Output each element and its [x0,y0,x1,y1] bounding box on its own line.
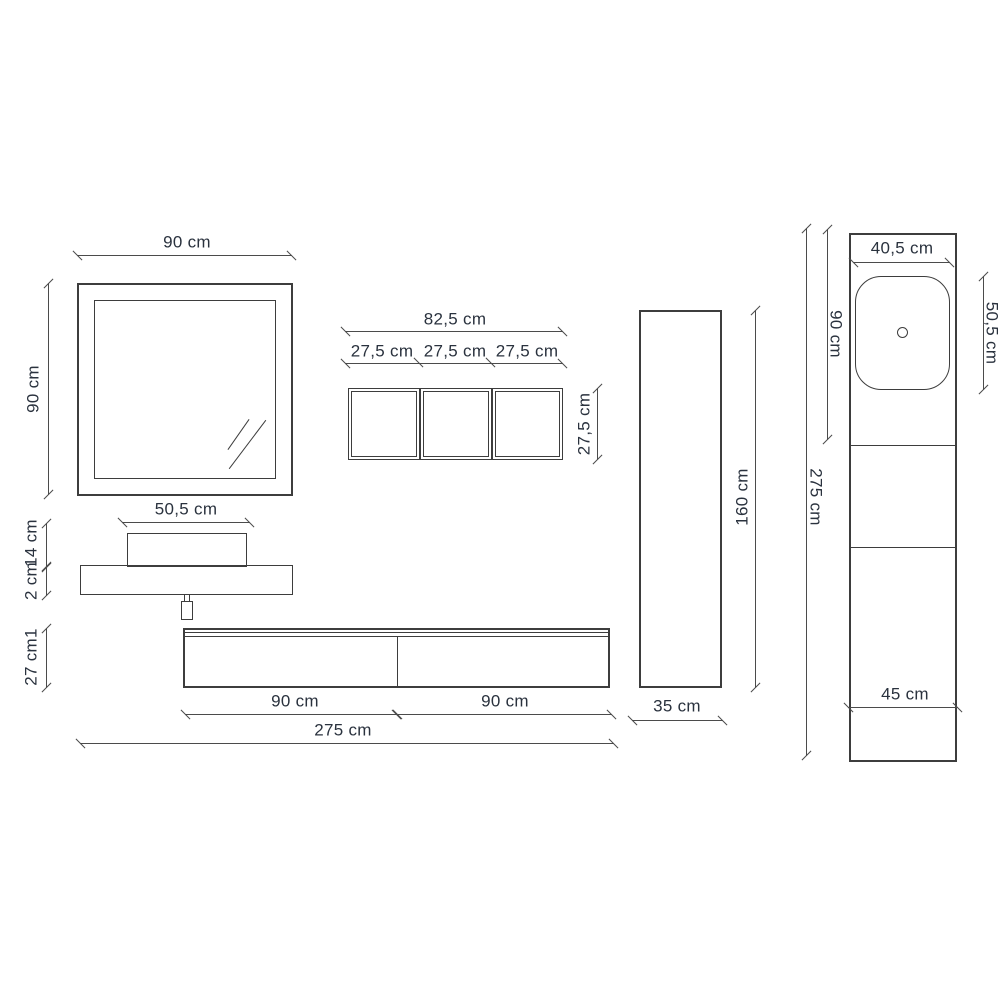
wall-box-3 [492,388,563,460]
wall-box-width-label-3: 27,5 cm [496,343,559,360]
base-cabinet-left-dim-line [185,714,397,715]
column-upper-section-label: 90 cm [828,310,845,358]
wall-boxes-segment-dim-line [345,363,563,364]
mirror-height-label: 90 cm [25,365,42,413]
column-top-width-label: 40,5 cm [871,240,934,257]
column-base-width-dim-line [848,707,958,708]
column-total-height-label: 275 cm [808,468,825,526]
faucet-body [181,601,193,620]
side-column-divider [851,445,955,446]
base-cabinet-top-edge-line [185,632,608,633]
basin-height-dim-line [46,523,47,567]
mirror-width-dim-line [77,255,292,256]
shelf-width-dim-line [122,522,250,523]
wall-box-1 [348,388,420,460]
wall-boxes-height-label: 27,5 cm [576,393,593,456]
base-cabinet-right-dim-line [397,714,612,715]
drain-hole [897,327,908,338]
wall-box-2 [420,388,492,460]
base-cabinet-left-width-label: 90 cm [271,693,319,710]
base-cabinet-right-width-label: 90 cm [481,693,529,710]
base-cabinet-divider [397,637,398,687]
column-basin-length-label: 50,5 cm [984,302,1000,365]
shelf-top [80,565,293,595]
wall-box-width-label-2: 27,5 cm [424,343,487,360]
wall-boxes-total-dim-line [345,331,563,332]
mirror-width-label: 90 cm [163,234,211,251]
column-base-width-label: 45 cm [881,686,929,703]
tall-cabinet-height-dim-line [755,310,756,688]
base-cabinet-height-label: 27 cm1 [23,628,40,686]
shelf-width-label: 50,5 cm [155,501,218,518]
tall-cabinet-height-label: 160 cm [734,468,751,526]
column-top-width-dim-line [853,262,950,263]
base-cabinet-height-dim-line [46,628,47,688]
total-width-label: 275 cm [314,722,372,739]
tall-cabinet-width-label: 35 cm [653,698,701,715]
dimension-diagram: 90 cm 90 cm 82,5 cm 27,5 cm 27,5 cm 27,5… [0,0,1000,1000]
washbasin-front [127,533,247,567]
wall-box-width-label-1: 27,5 cm [351,343,414,360]
mirror-glass [94,300,276,479]
tall-cabinet [639,310,722,688]
mirror-height-dim-line [48,283,49,495]
wall-boxes-total-width-label: 82,5 cm [424,311,487,328]
side-column-divider [851,547,955,548]
shelf-thickness-label: 2 cm [23,562,40,600]
basin-height-label: 14 cm [23,519,40,567]
tall-cabinet-width-dim-line [632,720,723,721]
total-width-dim-line [80,743,614,744]
shelf-thickness-dim-line [46,567,47,596]
wall-boxes-height-dim-line [597,388,598,460]
